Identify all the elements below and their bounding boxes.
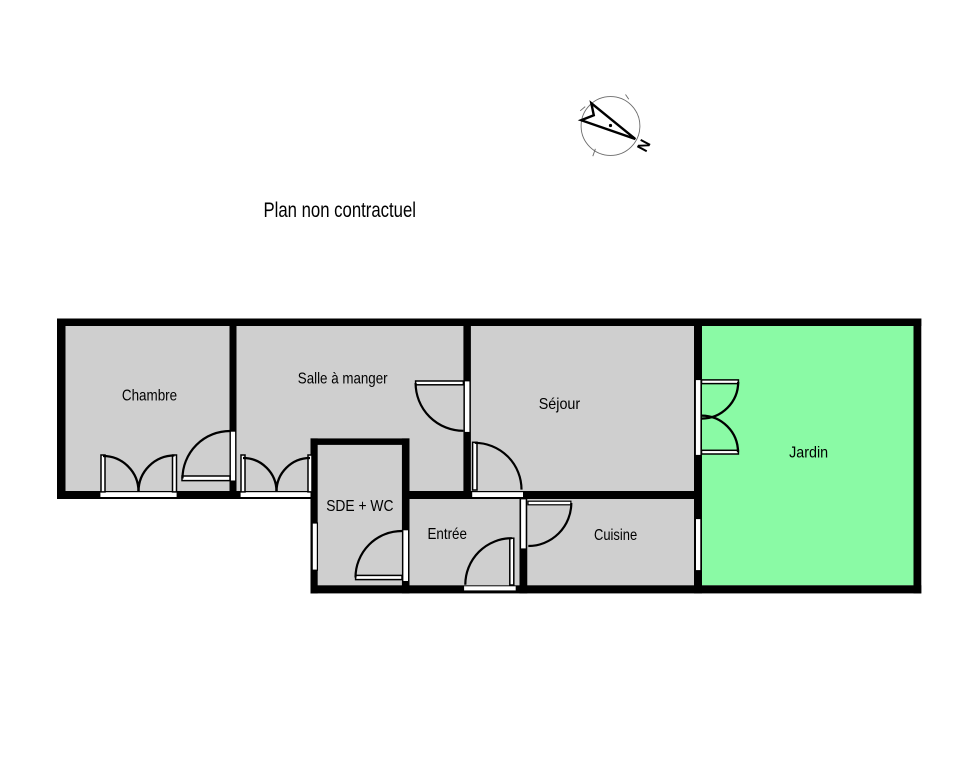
svg-text:Chambre: Chambre bbox=[122, 387, 177, 404]
svg-text:SDE + WC: SDE + WC bbox=[326, 498, 393, 515]
svg-text:Plan non contractuel: Plan non contractuel bbox=[264, 198, 417, 222]
svg-text:Séjour: Séjour bbox=[539, 396, 581, 413]
svg-text:Jardin: Jardin bbox=[789, 444, 828, 461]
svg-text:Salle à manger: Salle à manger bbox=[298, 370, 388, 387]
svg-text:Cuisine: Cuisine bbox=[594, 527, 637, 544]
svg-text:Entrée: Entrée bbox=[428, 526, 467, 543]
